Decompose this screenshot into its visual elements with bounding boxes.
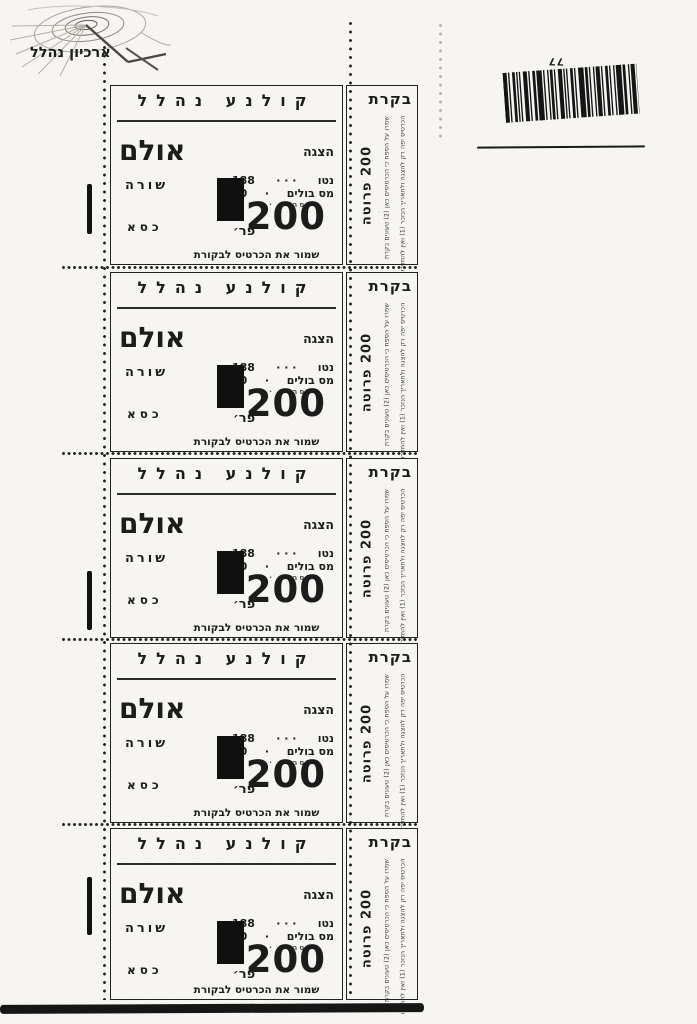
stub-condition-line-1: הכרטיס יפה רק להצגה ולתאריך הנזכר (1) וא…	[400, 303, 407, 447]
ticket-body: קולנע נהלל הצגה אולם שורה כסא נטו · · · …	[110, 828, 343, 1000]
stub-title: בקרת	[369, 833, 412, 851]
header-rule	[117, 493, 336, 495]
control-stub: בקרת הכרטיס יפה רק להצגה ולתאריך הנזכר (…	[346, 643, 418, 823]
net-leader-dots: · · ·	[276, 174, 296, 187]
header-rule	[117, 120, 336, 122]
binding-mark	[87, 877, 92, 935]
stub-condition-line-1: הכרטיס יפה רק להצגה ולתאריך הנזכר (1) וא…	[400, 674, 407, 818]
keep-ticket-note: שמור את הכרטיס לבקורת	[175, 807, 338, 819]
price-unit: פר׳	[233, 411, 255, 426]
cinema-ticket: קולנע נהלל הצגה אולם שורה כסא נטו · · · …	[110, 458, 418, 638]
stub-condition-line-1: הכרטיס יפה רק להצגה ולתאריך הנזכר (1) וא…	[400, 116, 407, 260]
net-row: נטו · · · 188	[232, 361, 334, 374]
keep-ticket-note: שמור את הכרטיס לבקורת	[175, 436, 338, 448]
scan-line-artifact	[477, 145, 645, 148]
overprint-block	[217, 736, 244, 779]
stub-condition-line-1: הכרטיס יפה רק להצגה ולתאריך הנזכר (1) וא…	[400, 489, 407, 633]
cinema-name: קולנע נהלל	[111, 834, 342, 853]
perforation-row	[62, 638, 418, 641]
ticket-body: קולנע נהלל הצגה אולם שורה כסא נטו · · · …	[110, 458, 343, 638]
show-label: הצגה	[303, 517, 334, 532]
control-stub: בקרת הכרטיס יפה רק להצגה ולתאריך הנזכר (…	[346, 828, 418, 1000]
cinema-ticket: קולנע נהלל הצגה אולם שורה כסא נטו · · · …	[110, 643, 418, 823]
stub-price: 200 פרוטה	[360, 499, 375, 619]
overprint-block	[217, 551, 244, 594]
overprint-block	[217, 178, 244, 221]
net-row: נטו · · · 188	[232, 732, 334, 745]
row-label: שורה	[125, 736, 168, 751]
row-label: שורה	[125, 178, 168, 193]
cinema-ticket: קולנע נהלל הצגה אולם שורה כסא נטו · · · …	[110, 828, 418, 1000]
header-rule	[117, 307, 336, 309]
binding-mark	[87, 571, 92, 630]
ticket-body: קולנע נהלל הצגה אולם שורה כסא נטו · · · …	[110, 272, 343, 452]
net-label: נטו	[318, 917, 334, 930]
net-leader-dots: · · ·	[276, 917, 296, 930]
stub-price: 200 פרוטה	[360, 684, 375, 804]
stub-price: 200 פרוטה	[360, 126, 375, 246]
seat-label: כסא	[127, 220, 163, 234]
keep-ticket-note: שמור את הכרטיס לבקורת	[175, 249, 338, 261]
barcode-icon	[502, 64, 639, 125]
net-leader-dots: · · ·	[276, 547, 296, 560]
hall-label: אולם	[119, 877, 185, 910]
row-label: שורה	[125, 365, 168, 380]
cinema-name: קולנע נהלל	[111, 649, 342, 668]
show-label: הצגה	[303, 702, 334, 717]
stub-price: 200 פרוטה	[360, 313, 375, 433]
barcode-handwritten-number: 77	[548, 55, 564, 66]
net-label: נטו	[318, 547, 334, 560]
seat-label: כסא	[127, 778, 163, 792]
price-unit: פר׳	[233, 967, 255, 982]
cinema-ticket: קולנע נהלל הצגה אולם שורה כסא נטו · · · …	[110, 85, 418, 265]
net-label: נטו	[318, 361, 334, 374]
keep-ticket-note: שמור את הכרטיס לבקורת	[175, 984, 338, 996]
hall-label: אולם	[119, 321, 185, 354]
archive-name-label: ארכיון נהלל	[30, 45, 111, 61]
net-label: נטו	[318, 732, 334, 745]
price-value: 200	[246, 941, 326, 978]
seat-label: כסא	[127, 593, 163, 607]
show-label: הצגה	[303, 887, 334, 902]
nahalal-aerial-sketch-icon	[8, 2, 173, 82]
perforation-row	[62, 823, 418, 826]
row-label: שורה	[125, 551, 168, 566]
control-stub: בקרת הכרטיס יפה רק להצגה ולתאריך הנזכר (…	[346, 272, 418, 452]
cinema-name: קולנע נהלל	[111, 91, 342, 110]
stub-title: בקרת	[369, 277, 412, 295]
stub-condition-line-2: שמרו על הספח כי הכרטיסים כאן (2) טעונים …	[384, 674, 391, 818]
stub-condition-line-1: הכרטיס יפה רק להצגה ולתאריך הנזכר (1) וא…	[400, 859, 407, 1003]
perforation-row	[62, 266, 418, 269]
stub-condition-line-2: שמרו על הספח כי הכרטיסים כאן (2) טעונים …	[384, 489, 391, 633]
net-leader-dots: · · ·	[276, 361, 296, 374]
stub-title: בקרת	[369, 90, 412, 108]
hall-label: אולם	[119, 692, 185, 725]
show-label: הצגה	[303, 144, 334, 159]
stub-price: 200 פרוטה	[360, 869, 375, 989]
net-row: נטו · · · 188	[232, 917, 334, 930]
ticket-body: קולנע נהלל הצגה אולם שורה כסא נטו · · · …	[110, 85, 343, 265]
control-stub: בקרת הכרטיס יפה רק להצגה ולתאריך הנזכר (…	[346, 85, 418, 265]
price-unit: פר׳	[233, 597, 255, 612]
seat-label: כסא	[127, 963, 163, 977]
keep-ticket-note: שמור את הכרטיס לבקורת	[175, 622, 338, 634]
net-row: נטו · · · 188	[232, 174, 334, 187]
show-label: הצגה	[303, 331, 334, 346]
net-row: נטו · · · 188	[232, 547, 334, 560]
control-stub: בקרת הכרטיס יפה רק להצגה ולתאריך הנזכר (…	[346, 458, 418, 638]
price-value: 200	[246, 385, 326, 422]
scan-edge-smear	[0, 1003, 424, 1014]
perforation-column-right-faint	[439, 24, 442, 142]
scanned-ticket-sheet: { "paper_color": "#f6f5f1", "ink_color":…	[0, 0, 697, 1024]
hall-label: אולם	[119, 134, 185, 167]
binding-mark	[87, 184, 92, 234]
price-unit: פר׳	[233, 782, 255, 797]
header-rule	[117, 863, 336, 865]
cinema-name: קולנע נהלל	[111, 464, 342, 483]
stub-title: בקרת	[369, 463, 412, 481]
cinema-ticket: קולנע נהלל הצגה אולם שורה כסא נטו · · · …	[110, 272, 418, 452]
stub-condition-line-2: שמרו על הספח כי הכרטיסים כאן (2) טעונים …	[384, 303, 391, 447]
price-value: 200	[246, 571, 326, 608]
net-label: נטו	[318, 174, 334, 187]
perforation-row	[62, 452, 418, 455]
stub-condition-line-2: שמרו על הספח כי הכרטיסים כאן (2) טעונים …	[384, 116, 391, 260]
net-leader-dots: · · ·	[276, 732, 296, 745]
header-rule	[117, 678, 336, 680]
seat-label: כסא	[127, 407, 163, 421]
price-unit: פר׳	[233, 224, 255, 239]
perforation-column-left	[103, 46, 106, 1000]
overprint-block	[217, 921, 244, 964]
ticket-body: קולנע נהלל הצגה אולם שורה כסא נטו · · · …	[110, 643, 343, 823]
price-value: 200	[246, 198, 326, 235]
nahalal-archive-logo: ארכיון נהלל	[8, 2, 173, 82]
price-value: 200	[246, 756, 326, 793]
stub-condition-line-2: שמרו על הספח כי הכרטיסים כאן (2) טעונים …	[384, 859, 391, 1003]
stub-title: בקרת	[369, 648, 412, 666]
row-label: שורה	[125, 921, 168, 936]
cinema-name: קולנע נהלל	[111, 278, 342, 297]
overprint-block	[217, 365, 244, 408]
hall-label: אולם	[119, 507, 185, 540]
barcode-sticker: 77	[502, 51, 647, 133]
